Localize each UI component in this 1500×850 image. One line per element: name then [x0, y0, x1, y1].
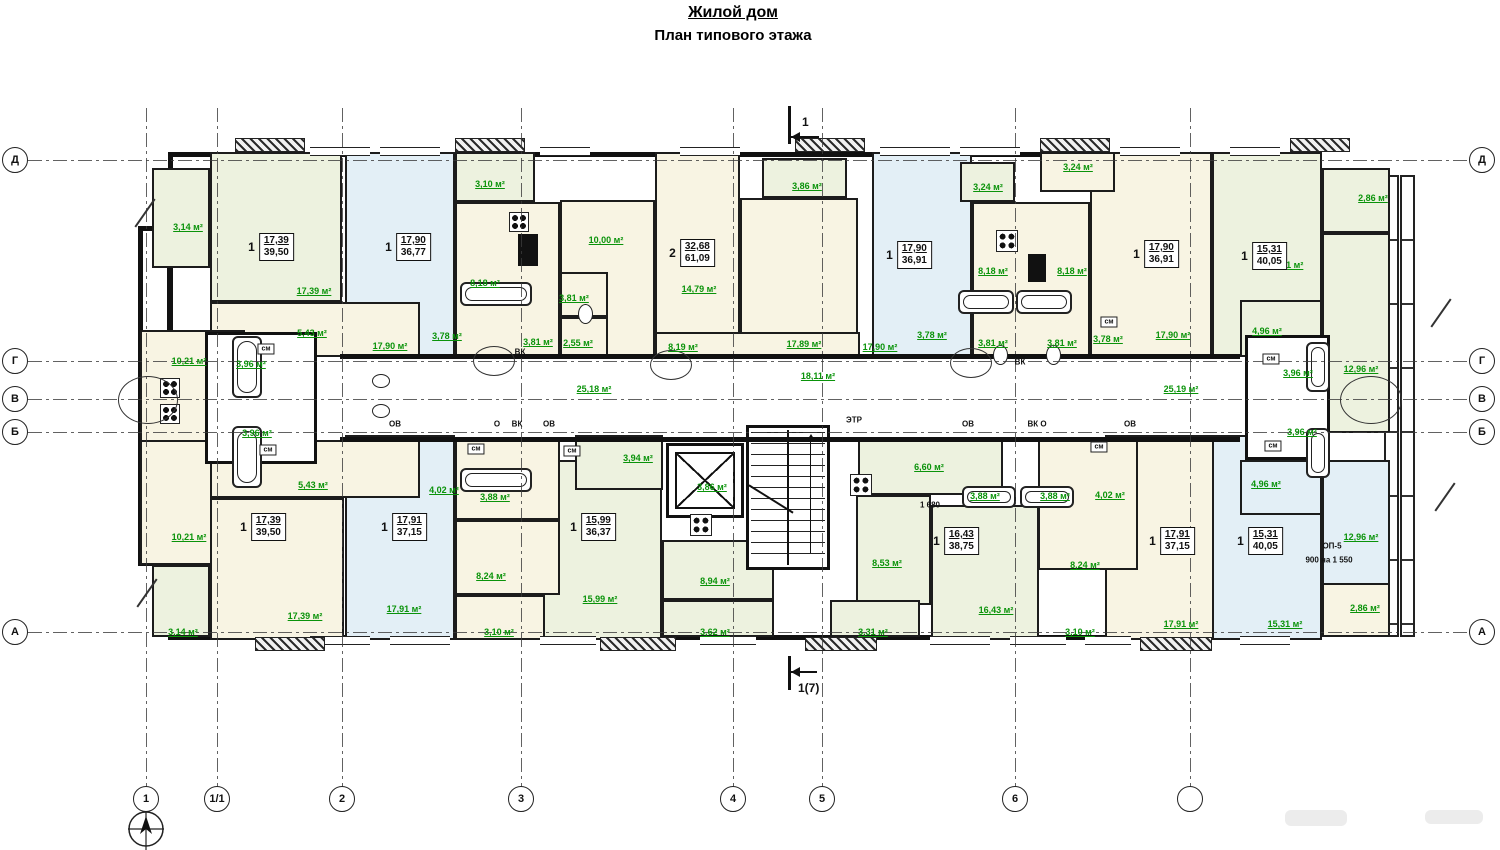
apartment-rooms-count: 1 [1149, 534, 1156, 548]
window-opening [1085, 636, 1131, 645]
apartment-rooms-count: 1 [385, 240, 392, 254]
annotation-label: ЭТР [846, 416, 862, 425]
toilet-icon [578, 304, 593, 324]
area-label: 4,02 м² [429, 485, 459, 495]
apartment-rooms-count: 1 [570, 520, 577, 534]
area-label: 3,10 м² [484, 627, 514, 637]
appliance-icon [1028, 254, 1046, 282]
room [856, 495, 931, 605]
apartment-rooms-count: 2 [669, 246, 676, 260]
apartment-rooms-count: 1 [1237, 534, 1244, 548]
apartment-total-area: 40,05 [1257, 256, 1282, 268]
apartment-area-box: 17,9137,15 [1160, 527, 1195, 555]
apartment-total-area: 38,75 [949, 541, 974, 553]
area-label: 2,86 м² [1350, 603, 1380, 613]
wall-hatch [795, 138, 865, 152]
area-label: 3,14 м² [168, 627, 198, 637]
apartment-area-box: 17,9137,15 [392, 513, 427, 541]
area-label: 3,81 м² [559, 293, 589, 303]
area-label: 2,86 м² [1358, 193, 1388, 203]
window-opening [540, 636, 596, 645]
apartment-living-area: 17,39 [264, 235, 289, 247]
area-label: 18,11 м² [801, 371, 835, 381]
axis-line-horizontal [28, 632, 1470, 633]
apartment-area-box: 17,3939,50 [251, 513, 286, 541]
annotation-label: ОВ [389, 420, 401, 429]
wall-hatch [1290, 138, 1350, 152]
wall-hatch [600, 637, 676, 651]
apartment-total-area: 36,91 [902, 255, 927, 267]
area-label: 5,43 м² [298, 480, 328, 490]
axis-line-vertical [733, 108, 734, 790]
area-label: 17,91 м² [1164, 619, 1199, 629]
area-label: 8,18 м² [1057, 266, 1087, 276]
axis-circle-left: Г [2, 348, 28, 374]
apartment-total-area: 36,91 [1149, 254, 1174, 266]
annotation-label: ВК [1015, 358, 1026, 367]
apartment-rooms-count: 1 [933, 534, 940, 548]
apartment-tag: 117,9137,15 [1149, 527, 1195, 555]
apartment-total-area: 36,37 [586, 527, 611, 539]
area-label: 10,21 м² [172, 532, 207, 542]
window-opening [680, 147, 740, 156]
area-label: 3,81 м² [1047, 338, 1077, 348]
axis-line-vertical [1190, 108, 1191, 790]
apartment-tag: 115,3140,05 [1237, 527, 1283, 555]
window-opening [880, 147, 950, 156]
stair-divider [787, 430, 789, 565]
area-label: 3,10 м² [475, 179, 505, 189]
apartment-total-area: 61,09 [685, 253, 710, 265]
axis-circle-bottom [1177, 786, 1203, 812]
area-label: 14,79 м² [682, 284, 717, 294]
apartment-tag: 115,9936,37 [570, 513, 616, 541]
area-label: 2,55 м² [563, 338, 593, 348]
apartment-area-box: 17,9036,91 [897, 241, 932, 269]
balcony-rail-inner [1400, 175, 1415, 637]
apartment-living-area: 17,91 [1165, 529, 1190, 541]
area-label: 3,96 м² [242, 428, 272, 438]
area-label: 17,90 м² [373, 341, 408, 351]
stair-direction-arrow [810, 436, 812, 553]
door-swing-oval [650, 350, 692, 380]
annotation-label: см [1090, 442, 1107, 453]
area-label: 3,78 м² [1093, 334, 1123, 344]
area-label: 5,43 м² [297, 328, 327, 338]
axis-circle-right: Б [1469, 419, 1495, 445]
bathtub-basin [1311, 347, 1325, 387]
window-opening [930, 636, 990, 645]
area-label: 3,88 м² [970, 491, 1000, 501]
axis-line-vertical [521, 108, 522, 790]
break-mark [1430, 299, 1451, 328]
area-label: 4,02 м² [1095, 490, 1125, 500]
room [1040, 152, 1115, 192]
bathtub-basin [465, 287, 527, 301]
apartment-tag: 117,9137,15 [381, 513, 427, 541]
annotation-label: см [467, 444, 484, 455]
wall-hatch [1040, 138, 1110, 152]
bathtub-icon [958, 290, 1014, 314]
annotation-label: см [259, 445, 276, 456]
area-label: 3,81 м² [523, 337, 553, 347]
window-opening [1120, 147, 1180, 156]
axis-circle-bottom: 1 [133, 786, 159, 812]
area-label: 12,96 м² [1344, 364, 1379, 374]
window-opening [540, 147, 590, 156]
scan-artifact [1425, 810, 1483, 824]
area-label: 4,96 м² [1251, 479, 1281, 489]
window-opening [1240, 636, 1290, 645]
area-label: 15,31 м² [1268, 619, 1303, 629]
axis-circle-left: А [2, 619, 28, 645]
apartment-living-area: 15,31 [1253, 529, 1278, 541]
drawing-title: Жилой дом [600, 4, 866, 22]
area-label: 25,18 м² [577, 384, 612, 394]
toilet-icon [1046, 345, 1061, 365]
axis-line-vertical [217, 108, 218, 790]
area-label: 17,90 м² [1156, 330, 1191, 340]
axis-circle-bottom: 6 [1002, 786, 1028, 812]
section-mark-bottom-arrowhead [786, 667, 800, 677]
annotation-label: ОВ [962, 420, 974, 429]
window-opening [310, 147, 370, 156]
bathtub-basin [237, 431, 257, 483]
apartment-tag: 117,9036,91 [1133, 240, 1179, 268]
annotation-label: см [563, 446, 580, 457]
annotation-label: см [1100, 317, 1117, 328]
area-label: 8,18 м² [978, 266, 1008, 276]
stove-icon [690, 514, 712, 536]
apartment-living-area: 17,39 [256, 515, 281, 527]
area-label: 3,86 м² [697, 482, 727, 492]
toilet-icon [372, 374, 390, 388]
annotation-label: ВК [512, 420, 523, 429]
apartment-total-area: 39,50 [264, 247, 289, 259]
room [762, 158, 847, 198]
apartment-rooms-count: 1 [886, 248, 893, 262]
door-swing-oval [950, 348, 992, 378]
area-label: 3,78 м² [917, 330, 947, 340]
area-label: 3,31 м² [858, 627, 888, 637]
wall-hatch [255, 637, 325, 651]
annotation-label: см [1262, 354, 1279, 365]
window-opening [1010, 636, 1066, 645]
window-opening [1230, 147, 1280, 156]
room [931, 505, 1039, 640]
section-mark-top-label: 1 [802, 115, 809, 129]
apartment-living-area: 15,31 [1257, 244, 1282, 256]
axis-circle-right: Г [1469, 348, 1495, 374]
apartment-total-area: 37,15 [1165, 541, 1190, 553]
annotation-label: ОВ [1124, 420, 1136, 429]
wall-hatch [1140, 637, 1212, 651]
apartment-area-box: 17,9036,91 [1144, 240, 1179, 268]
annotation-label: ВК О [1027, 420, 1046, 429]
axis-line-vertical [342, 108, 343, 790]
window-opening [380, 147, 440, 156]
axis-circle-left: В [2, 386, 28, 412]
annotation-label: см [1264, 441, 1281, 452]
wall-hatch [805, 637, 877, 651]
drawing-subtitle: План типового этажа [580, 27, 886, 44]
area-label: 10,00 м² [589, 235, 624, 245]
room [210, 152, 342, 302]
area-label: 3,24 м² [1063, 162, 1093, 172]
area-label: 3,62 м² [700, 627, 730, 637]
bathtub-basin [1021, 295, 1067, 309]
area-label: 15,99 м² [583, 594, 618, 604]
bathtub-icon [1016, 290, 1072, 314]
door-swing-oval [118, 376, 178, 424]
window-opening [960, 147, 1020, 156]
section-mark-top-arrowhead [786, 132, 800, 142]
toilet-icon [372, 404, 390, 418]
area-label: 4,96 м² [1252, 326, 1282, 336]
area-label: 10,21 м² [172, 356, 207, 366]
bathtub-basin [1311, 433, 1325, 473]
area-label: 8,94 м² [700, 576, 730, 586]
axis-circle-bottom: 1/1 [204, 786, 230, 812]
wall-hatch [455, 138, 525, 152]
apartment-rooms-count: 1 [1241, 249, 1248, 263]
area-label: 8,24 м² [1070, 560, 1100, 570]
apartment-area-box: 15,9936,37 [581, 513, 616, 541]
apartment-area-box: 32,6861,09 [680, 239, 715, 267]
apartment-area-box: 15,3140,05 [1252, 242, 1287, 270]
axis-circle-right: В [1469, 386, 1495, 412]
area-label: 17,89 м² [787, 339, 822, 349]
break-mark [1434, 483, 1455, 512]
area-label: 3,96 м² [236, 359, 266, 369]
apartment-tag: 117,3939,50 [248, 233, 294, 261]
apartment-area-box: 17,9036,77 [396, 233, 431, 261]
room [455, 520, 560, 595]
annotation-label: см [257, 344, 274, 355]
annotation-label: О [494, 420, 500, 429]
axis-circle-right: А [1469, 619, 1495, 645]
bathtub-basin [465, 473, 527, 487]
apartment-rooms-count: 1 [240, 520, 247, 534]
area-label: 3,10 м² [1065, 627, 1095, 637]
apartment-rooms-count: 1 [381, 520, 388, 534]
section-mark-bottom-label: 1(7) [798, 681, 819, 695]
axis-line-vertical [822, 108, 823, 790]
area-label: 3,78 м² [432, 331, 462, 341]
apartment-living-area: 17,90 [401, 235, 426, 247]
stove-icon [850, 474, 872, 496]
apartment-total-area: 39,50 [256, 527, 281, 539]
area-label: 3,86 м² [792, 181, 822, 191]
area-label: 8,24 м² [476, 571, 506, 581]
apartment-area-box: 15,3140,05 [1248, 527, 1283, 555]
area-label: 3,14 м² [173, 222, 203, 232]
apartment-tag: 117,9036,91 [886, 241, 932, 269]
apartment-living-area: 17,90 [1149, 242, 1174, 254]
bathtub-icon [1306, 342, 1330, 392]
blank-area [1205, 752, 1500, 850]
staircase [746, 425, 830, 570]
area-label: 8,18 м² [470, 278, 500, 288]
area-label: 6,60 м² [914, 462, 944, 472]
axis-circle-left: Б [2, 419, 28, 445]
axis-circle-bottom: 2 [329, 786, 355, 812]
north-orientation-icon [126, 806, 166, 850]
area-label: 3,24 м² [973, 182, 1003, 192]
scan-artifact [1285, 810, 1347, 826]
apartment-tag: 117,9036,77 [385, 233, 431, 261]
area-label: 25,19 м² [1164, 384, 1199, 394]
apartment-tag: 232,6861,09 [669, 239, 715, 267]
apartment-tag: 116,4338,75 [933, 527, 979, 555]
axis-line-horizontal [28, 160, 1470, 161]
area-label: 8,53 м² [872, 558, 902, 568]
axis-circle-bottom: 4 [720, 786, 746, 812]
door-swing-oval [1340, 376, 1402, 424]
apartment-rooms-count: 1 [1133, 247, 1140, 261]
annotation-label: 900 на 1 550 [1305, 556, 1352, 565]
apartment-area-box: 17,3939,50 [259, 233, 294, 261]
stove-icon [509, 212, 529, 232]
annotation-label: ОВ [543, 420, 555, 429]
elevator-car-cross [675, 452, 735, 509]
apartment-rooms-count: 1 [248, 240, 255, 254]
window-opening [390, 636, 450, 645]
area-label: 12,96 м² [1344, 532, 1379, 542]
area-label: 16,43 м² [979, 605, 1014, 615]
apartment-living-area: 17,90 [902, 243, 927, 255]
annotation-label: ВК [515, 348, 526, 357]
apartment-tag: 115,3140,05 [1241, 242, 1287, 270]
area-label: 17,39 м² [288, 611, 323, 621]
apartment-total-area: 36,77 [401, 247, 426, 259]
toilet-icon [993, 345, 1008, 365]
axis-circle-left: Д [2, 147, 28, 173]
window-opening [700, 636, 756, 645]
bathtub-basin [963, 295, 1009, 309]
room [152, 168, 210, 268]
area-label: 17,90 м² [863, 342, 898, 352]
apartment-living-area: 16,43 [949, 529, 974, 541]
area-label: 3,88 м² [1040, 491, 1070, 501]
area-label: 3,88 м² [480, 492, 510, 502]
area-label: 3,94 м² [623, 453, 653, 463]
axis-line-horizontal [28, 399, 1470, 400]
axis-circle-bottom: 5 [809, 786, 835, 812]
apartment-tag: 117,3939,50 [240, 513, 286, 541]
area-label: 17,39 м² [297, 286, 332, 296]
apartment-total-area: 37,15 [397, 527, 422, 539]
area-label: 8,19 м² [668, 342, 698, 352]
axis-circle-right: Д [1469, 147, 1495, 173]
axis-circle-bottom: 3 [508, 786, 534, 812]
apartment-living-area: 17,91 [397, 515, 422, 527]
area-label: 3,96 м² [1283, 368, 1313, 378]
area-label: 3,96 м² [1287, 427, 1317, 437]
annotation-label: ОП-5 [1322, 542, 1341, 551]
wall-hatch [235, 138, 305, 152]
apartment-living-area: 32,68 [685, 241, 710, 253]
annotation-label: 1 680 [920, 501, 940, 510]
floor-plan-canvas: Жилой дом План типового этажа 1 1(7) 3,1… [0, 0, 1500, 850]
area-label: 17,91 м² [387, 604, 422, 614]
apartment-area-box: 16,4338,75 [944, 527, 979, 555]
stair-flight-right [789, 432, 825, 563]
apartment-living-area: 15,99 [586, 515, 611, 527]
axis-line-vertical [1015, 108, 1016, 790]
area-label: 3,81 м² [978, 338, 1008, 348]
apartment-total-area: 40,05 [1253, 541, 1278, 553]
